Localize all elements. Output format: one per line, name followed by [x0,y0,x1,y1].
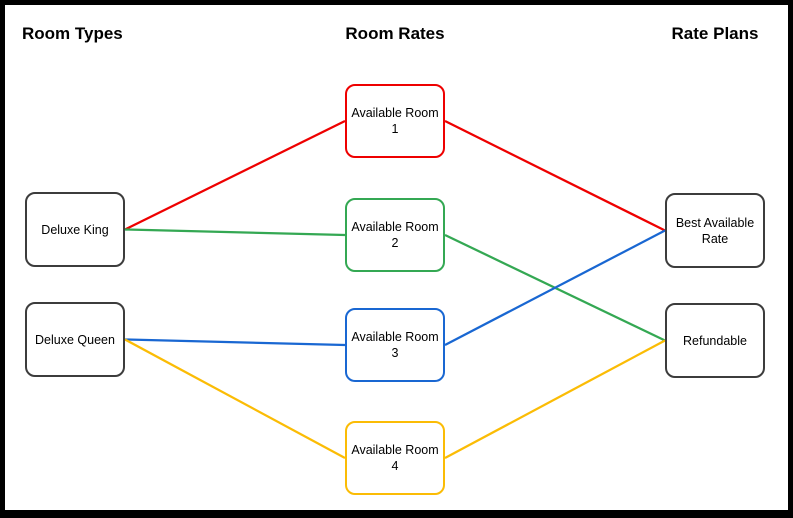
node-label-best-available-rate: Best Available Rate [669,215,761,247]
edge-available_room_3-best_available_rate [445,231,665,346]
node-deluxe-queen: Deluxe Queen [25,302,125,377]
node-available-room-1: Available Room 1 [345,84,445,158]
node-label-deluxe-king: Deluxe King [41,222,108,238]
edge-available_room_1-best_available_rate [445,121,665,231]
edge-deluxe_queen-available_room_3 [125,340,345,346]
node-deluxe-king: Deluxe King [25,192,125,267]
edge-deluxe_king-available_room_2 [125,230,345,236]
edge-deluxe_queen-available_room_4 [125,340,345,459]
node-available-room-3: Available Room 3 [345,308,445,382]
node-available-room-2: Available Room 2 [345,198,445,272]
node-label-deluxe-queen: Deluxe Queen [35,332,115,348]
diagram-canvas: Room Types Room Rates Rate Plans Deluxe … [0,0,793,518]
node-label-available-room-4: Available Room 4 [349,442,441,474]
node-best-available-rate: Best Available Rate [665,193,765,268]
edge-available_room_4-refundable [445,341,665,459]
node-label-refundable: Refundable [683,333,747,349]
edge-deluxe_king-available_room_1 [125,121,345,230]
node-refundable: Refundable [665,303,765,378]
node-label-available-room-1: Available Room 1 [349,105,441,137]
node-label-available-room-2: Available Room 2 [349,219,441,251]
node-available-room-4: Available Room 4 [345,421,445,495]
node-label-available-room-3: Available Room 3 [349,329,441,361]
